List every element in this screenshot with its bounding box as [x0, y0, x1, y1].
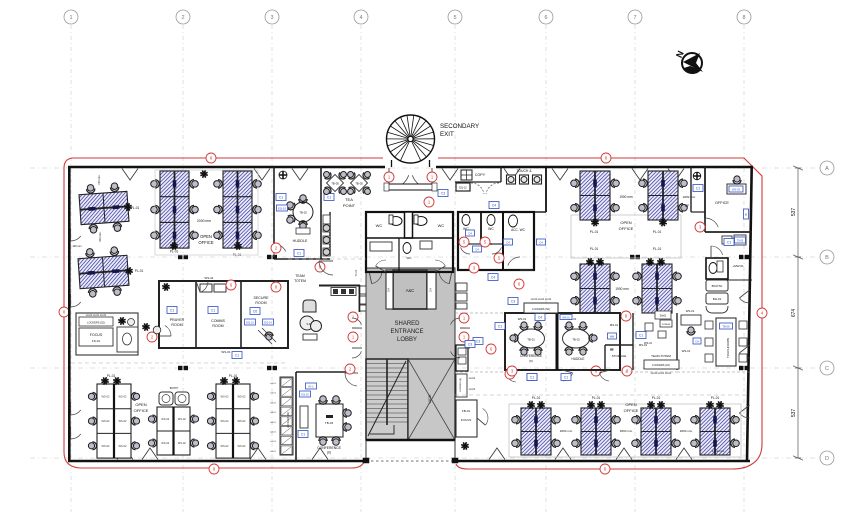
svg-text:WC: WC [407, 256, 413, 260]
svg-text:PL-01: PL-01 [131, 206, 140, 210]
svg-text:TC-01: TC-01 [355, 269, 358, 277]
svg-text:LA-01: LA-01 [270, 411, 277, 414]
svg-text:C1: C1 [279, 195, 283, 199]
svg-text:1900 mm: 1900 mm [615, 287, 629, 291]
svg-text:ENTRANCE: ENTRANCE [390, 329, 423, 335]
svg-text:LA-01: LA-01 [270, 450, 277, 453]
svg-text:C4: C4 [492, 203, 496, 207]
svg-text:PL-01: PL-01 [135, 269, 144, 273]
svg-text:TEAM-TOTEM: TEAM-TOTEM [651, 354, 671, 358]
svg-text:BH-01: BH-01 [713, 297, 722, 301]
svg-text:OPEN: OPEN [620, 220, 631, 225]
svg-text:EQ-15: EQ-15 [278, 206, 287, 210]
svg-text:HUDDLE: HUDDLE [293, 239, 308, 243]
svg-text:POINT: POINT [343, 203, 356, 208]
svg-text:TB-03: TB-03 [325, 421, 334, 425]
svg-text:OFFICE: OFFICE [619, 226, 634, 231]
svg-text:1262 mm: 1262 mm [712, 449, 725, 453]
svg-text:5: 5 [453, 15, 456, 21]
svg-text:674: 674 [791, 309, 797, 318]
svg-text:OPEN: OPEN [135, 402, 146, 407]
svg-text:C1: C1 [211, 308, 215, 312]
svg-text:S-07: S-07 [306, 323, 312, 326]
svg-text:TB-08: TB-08 [722, 324, 730, 328]
svg-text:VIDE: VIDE [427, 394, 432, 404]
svg-text:C1: C1 [498, 324, 502, 328]
svg-text:(6): (6) [327, 451, 331, 455]
svg-text:FOCUS: FOCUS [90, 333, 103, 337]
svg-text:C4: C4 [539, 240, 543, 244]
svg-text:150 mm: 150 mm [97, 175, 101, 184]
svg-text:LOBBY: LOBBY [397, 337, 417, 343]
svg-text:ROOM: ROOM [212, 324, 223, 328]
svg-text:PL-01: PL-01 [229, 374, 238, 378]
svg-text:C3: C3 [441, 191, 445, 195]
svg-text:LA-01: LA-01 [270, 401, 277, 404]
svg-text:1: 1 [69, 15, 72, 21]
svg-text:MW: MW [610, 334, 615, 338]
svg-text:LA-01 LA-01 LA-01: LA-01 LA-01 LA-01 [651, 372, 672, 375]
svg-text:LOCKERS (32): LOCKERS (32) [287, 412, 290, 429]
svg-text:MS-01: MS-01 [610, 323, 619, 327]
svg-text:TB-02: TB-02 [299, 211, 307, 215]
svg-text:CONFERENCE: CONFERENCE [520, 354, 542, 358]
svg-text:WS-02: WS-02 [178, 417, 186, 421]
svg-text:WS-02: WS-02 [119, 419, 127, 423]
svg-text:C4: C4 [475, 247, 479, 251]
svg-text:100 mm: 100 mm [72, 244, 81, 248]
svg-text:TB-01: TB-01 [527, 338, 535, 342]
svg-text:C3: C3 [476, 339, 480, 343]
svg-text:2: 2 [181, 15, 184, 21]
svg-text:LOCKERS (52): LOCKERS (52) [532, 307, 550, 311]
svg-text:WS-02: WS-02 [119, 444, 127, 448]
svg-text:WS-01: WS-01 [221, 350, 231, 354]
svg-text:B: B [745, 212, 747, 216]
svg-text:LA-01: LA-01 [270, 440, 277, 443]
svg-text:WS-02: WS-02 [238, 444, 246, 448]
svg-text:FORUM: FORUM [662, 324, 670, 326]
svg-text:LA-01: LA-01 [270, 382, 277, 385]
svg-text:50x02: 50x02 [660, 315, 667, 318]
svg-text:O/A: O/A [388, 288, 391, 293]
svg-text:WS-01: WS-01 [644, 341, 652, 345]
svg-text:LOCKERS (52): LOCKERS (52) [87, 321, 105, 325]
svg-text:PL-01: PL-01 [711, 396, 720, 400]
svg-text:C1: C1 [297, 251, 301, 255]
svg-text:TB-05: TB-05 [355, 182, 363, 186]
svg-text:1800 mm: 1800 mm [620, 429, 633, 433]
svg-text:LA-01: LA-01 [469, 377, 476, 380]
svg-text:TEA: TEA [345, 197, 353, 202]
svg-text:FS-01: FS-01 [92, 339, 101, 343]
svg-text:C6: C6 [253, 309, 257, 313]
svg-text:WC: WC [438, 223, 445, 228]
svg-text:IG-1: IG-1 [308, 384, 314, 388]
svg-text:CONFERENCE: CONFERENCE [317, 446, 341, 450]
svg-text:EQ-15: EQ-15 [301, 393, 309, 396]
svg-text:LA-01: LA-01 [270, 421, 277, 424]
svg-text:C1: C1 [530, 375, 534, 379]
svg-text:BOOTH: BOOTH [170, 387, 179, 390]
svg-text:C1: C1 [564, 375, 568, 379]
svg-text:PL-01: PL-01 [170, 250, 179, 254]
svg-text:300 mm: 300 mm [98, 232, 102, 241]
svg-text:WS-01: WS-01 [686, 309, 695, 313]
svg-text:C1: C1 [327, 195, 331, 199]
svg-text:WS-02: WS-02 [238, 394, 246, 398]
svg-text:TB-05: TB-05 [331, 182, 339, 186]
svg-text:WS-03: WS-03 [732, 187, 740, 191]
svg-text:WS-02: WS-02 [102, 394, 110, 398]
svg-text:EQ-12: EQ-12 [459, 186, 467, 190]
svg-text:FOCUS: FOCUS [461, 418, 472, 422]
svg-text:RF: RF [610, 347, 614, 351]
svg-text:C: C [825, 366, 829, 372]
svg-text:OFFICE: OFFICE [624, 408, 639, 413]
svg-text:SECURE: SECURE [254, 296, 270, 300]
svg-text:LOCKERS (8): LOCKERS (8) [460, 378, 462, 392]
svg-text:C4: C4 [506, 240, 510, 244]
svg-text:PL-01: PL-01 [653, 247, 662, 251]
svg-text:A: A [825, 166, 829, 172]
svg-text:TOUCHDOWN: TOUCHDOWN [726, 338, 730, 358]
svg-text:WS-02: WS-02 [221, 394, 229, 398]
svg-text:OFFICE: OFFICE [715, 201, 729, 205]
svg-text:+MW-01: +MW-01 [732, 264, 744, 268]
svg-text:A&C: A&C [406, 288, 415, 293]
svg-text:SHARED: SHARED [394, 321, 420, 327]
svg-text:537: 537 [791, 409, 797, 418]
svg-text:WS-02: WS-02 [102, 444, 110, 448]
svg-text:PL-01: PL-01 [532, 396, 541, 400]
svg-text:SECONDARY: SECONDARY [440, 123, 479, 130]
svg-text:LA-01 LA-01 LA-01: LA-01 LA-01 LA-01 [86, 314, 107, 317]
svg-text:OPEN: OPEN [625, 402, 636, 407]
svg-text:C1: C1 [170, 308, 174, 312]
svg-text:WS-01: WS-01 [204, 276, 214, 280]
svg-text:WS-02: WS-02 [161, 417, 169, 421]
svg-text:HUDDLE: HUDDLE [571, 357, 584, 361]
svg-text:WC: WC [376, 223, 383, 228]
svg-text:C1: C1 [301, 432, 305, 436]
svg-text:WS-01: WS-01 [562, 316, 570, 319]
svg-text:LA-01 LA-01 LA-01: LA-01 LA-01 LA-01 [531, 298, 552, 301]
svg-text:WS-02: WS-02 [161, 441, 169, 445]
svg-text:PL-01: PL-01 [592, 396, 601, 400]
svg-text:LOCKERS (16): LOCKERS (16) [652, 363, 670, 367]
svg-text:OFFICE: OFFICE [198, 240, 214, 245]
svg-text:(6): (6) [529, 359, 533, 363]
svg-text:EXIT: EXIT [440, 131, 454, 138]
svg-text:PL-01: PL-01 [107, 374, 116, 378]
svg-text:3: 3 [270, 15, 273, 21]
svg-text:STORAGE: STORAGE [612, 354, 627, 358]
svg-text:OPEN: OPEN [200, 234, 212, 239]
svg-text:TOTEM: TOTEM [294, 279, 306, 283]
svg-text:537: 537 [791, 208, 797, 217]
svg-text:ROOM: ROOM [255, 301, 266, 305]
svg-text:B: B [825, 255, 829, 261]
svg-text:1900 mm: 1900 mm [619, 195, 633, 199]
svg-text:FB-01: FB-01 [462, 409, 471, 413]
svg-text:2082 mm: 2082 mm [683, 195, 696, 199]
svg-text:6: 6 [544, 15, 547, 21]
svg-text:D: D [825, 456, 829, 462]
svg-text:C1: C1 [639, 333, 643, 337]
svg-text:1800 mm: 1800 mm [560, 429, 573, 433]
svg-text:EQ-14: EQ-14 [264, 320, 272, 324]
svg-text:BOOTH: BOOTH [712, 284, 723, 288]
svg-text:VF: VF [685, 204, 689, 208]
svg-text:8: 8 [742, 15, 745, 21]
svg-text:WS-01: WS-01 [518, 317, 527, 321]
svg-text:LA-01: LA-01 [270, 431, 277, 434]
svg-text:PL-01: PL-01 [590, 230, 599, 234]
svg-text:WS-02: WS-02 [178, 441, 186, 445]
svg-text:WC: WC [488, 227, 494, 231]
svg-text:CH: CH [695, 339, 699, 343]
svg-text:COPY: COPY [475, 173, 486, 177]
svg-text:EQ-13: EQ-13 [246, 320, 254, 324]
svg-text:ROOM: ROOM [171, 323, 182, 327]
svg-text:C4: C4 [538, 315, 542, 319]
svg-text:ACC. WC: ACC. WC [511, 228, 526, 232]
svg-text:C3: C3 [511, 299, 515, 303]
svg-text:4: 4 [359, 15, 362, 21]
svg-text:TS-05: TS-05 [737, 239, 744, 242]
svg-text:OFFICE: OFFICE [134, 408, 149, 413]
svg-text:2000 mm: 2000 mm [197, 219, 211, 223]
svg-text:LA-01: LA-01 [270, 392, 277, 395]
svg-text:COMMS: COMMS [211, 319, 225, 323]
svg-text:PL-01: PL-01 [653, 230, 662, 234]
svg-text:WS-02: WS-02 [221, 444, 229, 448]
svg-text:WS-02: WS-02 [221, 419, 229, 423]
svg-text:WS-01: WS-01 [682, 349, 691, 353]
svg-text:PL-01: PL-01 [652, 396, 661, 400]
svg-text:C4: C4 [491, 275, 495, 279]
svg-text:WS-02: WS-02 [238, 419, 246, 423]
svg-text:LA-01: LA-01 [469, 388, 476, 391]
svg-text:WS-02: WS-02 [119, 394, 127, 398]
svg-text:TEAM: TEAM [295, 274, 305, 278]
svg-text:PRAYER: PRAYER [170, 318, 185, 322]
svg-text:PL-01: PL-01 [590, 247, 599, 251]
svg-text:C4: C4 [468, 231, 472, 235]
svg-text:TOUCH &: TOUCH & [516, 169, 532, 173]
svg-text:C3: C3 [468, 342, 472, 346]
svg-text:O/A: O/A [430, 288, 433, 293]
svg-text:C1: C1 [727, 240, 731, 244]
svg-text:C1: C1 [696, 186, 700, 190]
svg-text:7: 7 [633, 15, 636, 21]
svg-text:C1: C1 [235, 353, 239, 357]
svg-text:1800 mm: 1800 mm [680, 429, 693, 433]
svg-text:TB-02: TB-02 [572, 338, 580, 342]
svg-text:WS-02: WS-02 [102, 419, 110, 423]
